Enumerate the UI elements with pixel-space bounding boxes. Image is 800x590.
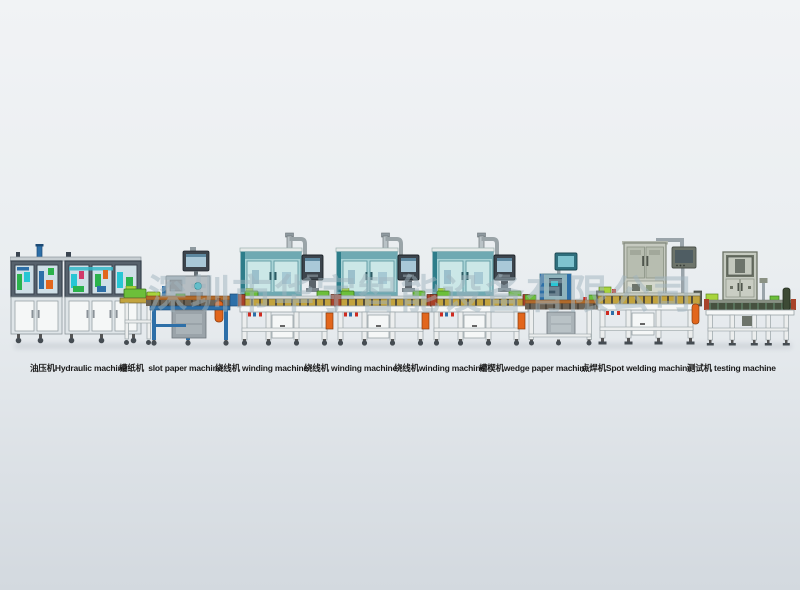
winding-monitor [302,255,323,292]
testing-feet [707,340,790,346]
welding-cabinet [622,241,668,295]
transfer-item-green [124,289,146,298]
slotpaper-wheels [151,340,228,346]
caption-label-spot-welding-machine: 点焊机Spot welding machine [581,362,692,374]
winding-machine-illustration [238,222,338,346]
production-line-scene: 深圳市华宇智能设备有限公司 油压机Hydraulic machine 槽纸机 s… [0,0,800,590]
winding-table [240,306,336,340]
machine-winding-2 [334,222,434,346]
slot-paper-machine-illustration [146,246,241,346]
wedge-paper-machine-illustration [525,250,600,346]
hydraulic-upper-left-module [11,261,62,297]
welding-table [598,304,699,338]
caption-label-hydraulic-machine: 油压机Hydraulic machine [30,362,127,374]
machine-winding-1 [238,222,338,346]
welding-monitor [672,247,696,295]
testing-cabinet [723,252,757,300]
caption-label-slot-paper-machine: 槽纸机 slot paper machine [119,362,222,374]
hydraulic-roof-fixtures [16,244,71,258]
wedge-frame [529,310,592,340]
machine-slot-paper [146,246,241,346]
winding-machine-illustration [334,222,434,346]
testing-table [706,310,794,340]
machine-winding-3 [430,222,530,346]
winding-table [432,306,528,340]
caption-label-winding-machine-1: 绕线机 winding machine [215,362,308,374]
winding-monitor [494,255,515,292]
machine-spot-welding [596,238,702,346]
spot-welding-machine-illustration [596,238,702,346]
caption-label-winding-machine-3: 绕线机winding machine [394,362,485,374]
caption-label-testing-machine: 测试机 testing machine [687,362,776,374]
winding-machine-illustration [430,222,530,346]
winding-table [336,306,432,340]
wedge-tower [540,274,571,300]
testing-sensor-post [760,278,768,300]
caption-label-winding-machine-2: 绕线机 winding machine [304,362,397,374]
machine-wedge-paper [525,250,600,346]
winding-wheels [434,339,519,346]
slotpaper-monitor [183,247,209,278]
machine-testing [704,250,796,346]
winding-wheels [338,339,423,346]
winding-monitor [398,255,419,292]
welding-feet [599,338,695,345]
winding-wheels [242,339,327,346]
hydraulic-top-slab [10,257,141,261]
wedge-wheels [529,340,592,346]
caption-label-wedge-paper-machine: 槽楔机wedge paper machine [479,362,589,374]
testing-machine-illustration [704,250,796,346]
